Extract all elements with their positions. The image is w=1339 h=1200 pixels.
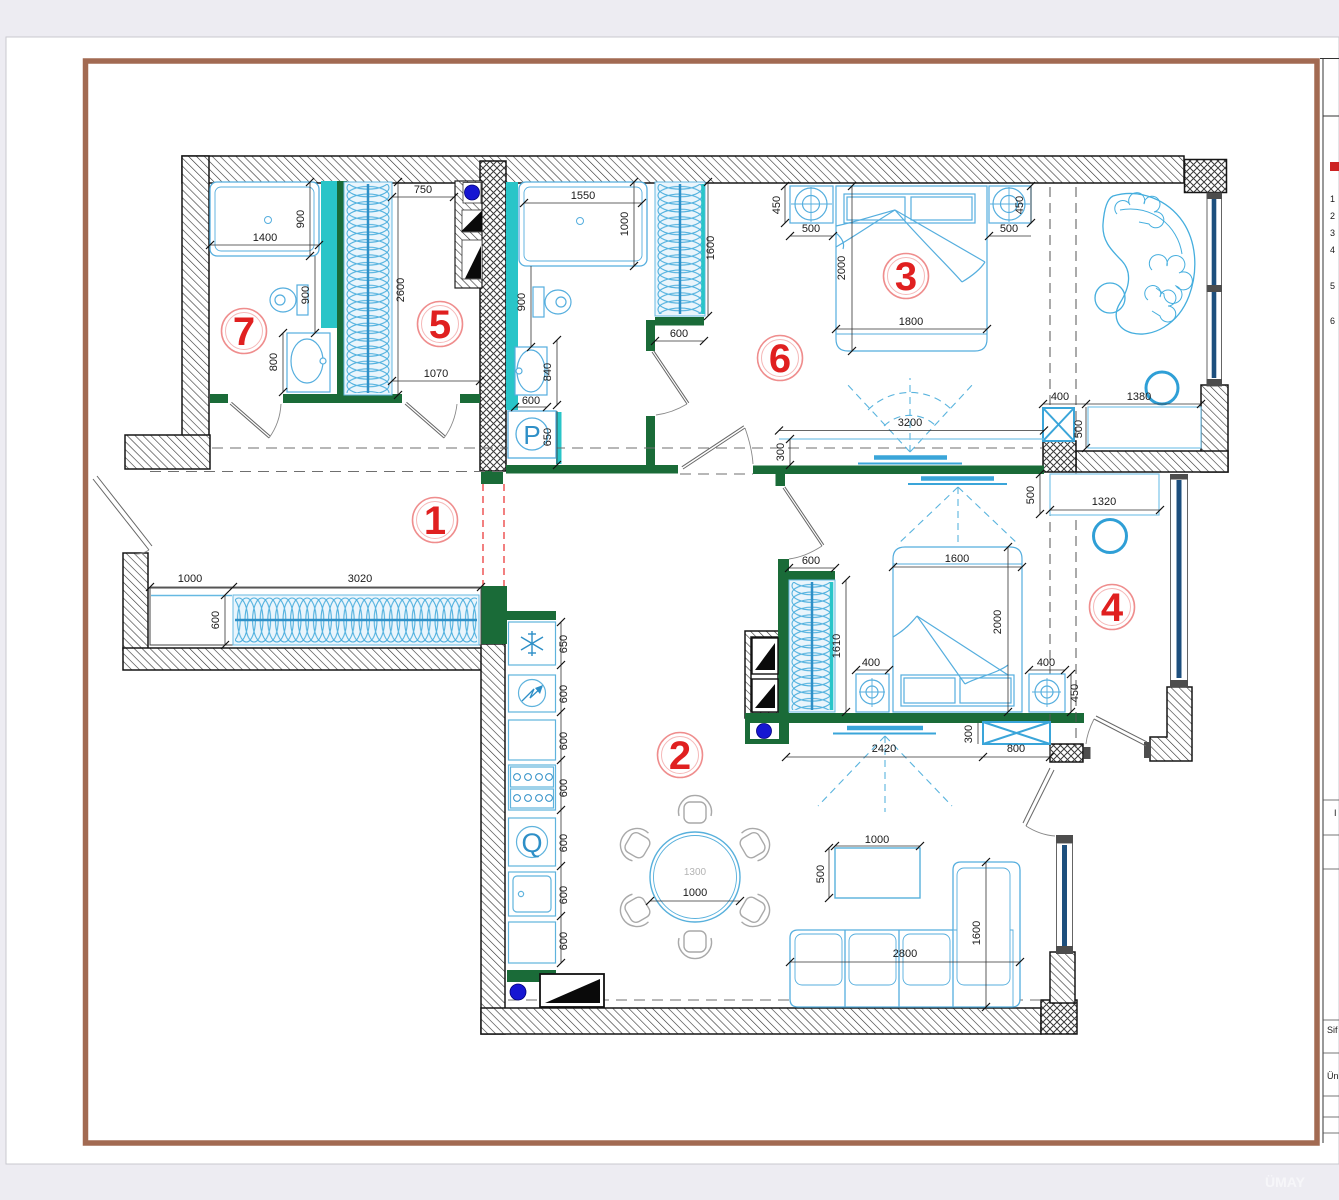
- svg-text:Ün: Ün: [1327, 1071, 1339, 1081]
- svg-text:500: 500: [815, 865, 827, 883]
- svg-text:300: 300: [963, 725, 975, 743]
- svg-text:600: 600: [558, 732, 570, 750]
- svg-text:6: 6: [769, 337, 791, 381]
- svg-text:650: 650: [542, 428, 554, 446]
- svg-text:800: 800: [1007, 743, 1025, 755]
- svg-text:900: 900: [516, 293, 528, 311]
- svg-text:600: 600: [522, 395, 540, 407]
- svg-text:1800: 1800: [899, 316, 923, 328]
- svg-text:840: 840: [542, 363, 554, 381]
- svg-text:600: 600: [558, 886, 570, 904]
- svg-text:1400: 1400: [253, 232, 277, 244]
- svg-text:400: 400: [1037, 657, 1055, 669]
- svg-text:450: 450: [1014, 196, 1026, 214]
- svg-text:4: 4: [1101, 586, 1124, 630]
- svg-text:500: 500: [1000, 223, 1018, 235]
- svg-text:800: 800: [268, 353, 280, 371]
- svg-text:3: 3: [1330, 228, 1335, 238]
- svg-text:1000: 1000: [865, 834, 889, 846]
- svg-text:600: 600: [558, 834, 570, 852]
- svg-text:1550: 1550: [571, 190, 595, 202]
- svg-text:1600: 1600: [705, 236, 717, 260]
- svg-text:450: 450: [771, 196, 783, 214]
- svg-text:1300: 1300: [684, 867, 707, 878]
- svg-text:600: 600: [558, 685, 570, 703]
- svg-text:500: 500: [1073, 420, 1085, 438]
- svg-text:750: 750: [414, 184, 432, 196]
- svg-text:1380: 1380: [1127, 391, 1151, 403]
- svg-text:3200: 3200: [898, 417, 922, 429]
- svg-text:6: 6: [1330, 316, 1335, 326]
- svg-text:Q: Q: [521, 828, 542, 858]
- svg-text:500: 500: [1025, 486, 1037, 504]
- svg-text:2: 2: [1330, 211, 1335, 221]
- svg-text:5: 5: [429, 303, 451, 347]
- svg-text:3020: 3020: [348, 573, 372, 585]
- svg-text:3: 3: [895, 255, 917, 299]
- svg-text:1610: 1610: [831, 634, 843, 658]
- svg-text:400: 400: [862, 657, 880, 669]
- svg-text:7: 7: [233, 310, 255, 354]
- svg-text:1320: 1320: [1092, 496, 1116, 508]
- svg-text:4: 4: [1330, 245, 1335, 255]
- svg-text:2000: 2000: [836, 256, 848, 280]
- svg-text:900: 900: [300, 286, 312, 304]
- svg-text:2000: 2000: [992, 610, 1004, 634]
- svg-text:900: 900: [295, 210, 307, 228]
- svg-text:1000: 1000: [178, 573, 202, 585]
- svg-text:1600: 1600: [971, 921, 983, 945]
- svg-text:ÜMAY: ÜMAY: [1265, 1174, 1306, 1190]
- svg-text:600: 600: [558, 932, 570, 950]
- svg-text:600: 600: [210, 611, 222, 629]
- svg-text:2600: 2600: [395, 278, 407, 302]
- svg-text:400: 400: [1051, 391, 1069, 403]
- svg-text:600: 600: [558, 779, 570, 797]
- svg-text:1600: 1600: [945, 553, 969, 565]
- svg-text:5: 5: [1330, 281, 1335, 291]
- svg-text:1: 1: [1330, 194, 1335, 204]
- svg-text:1000: 1000: [619, 212, 631, 236]
- svg-text:450: 450: [1069, 684, 1081, 702]
- svg-text:1: 1: [424, 499, 446, 543]
- svg-text:650: 650: [558, 635, 570, 653]
- svg-text:600: 600: [670, 328, 688, 340]
- svg-text:600: 600: [802, 555, 820, 567]
- svg-text:300: 300: [775, 443, 787, 461]
- svg-text:2420: 2420: [872, 743, 896, 755]
- svg-text:1000: 1000: [683, 887, 707, 899]
- svg-text:I: I: [1334, 808, 1337, 818]
- svg-text:500: 500: [802, 223, 820, 235]
- svg-text:2800: 2800: [893, 948, 917, 960]
- svg-text:P: P: [523, 420, 540, 450]
- svg-text:Sif: Sif: [1327, 1025, 1338, 1035]
- svg-text:2: 2: [669, 734, 691, 778]
- svg-text:1070: 1070: [424, 368, 448, 380]
